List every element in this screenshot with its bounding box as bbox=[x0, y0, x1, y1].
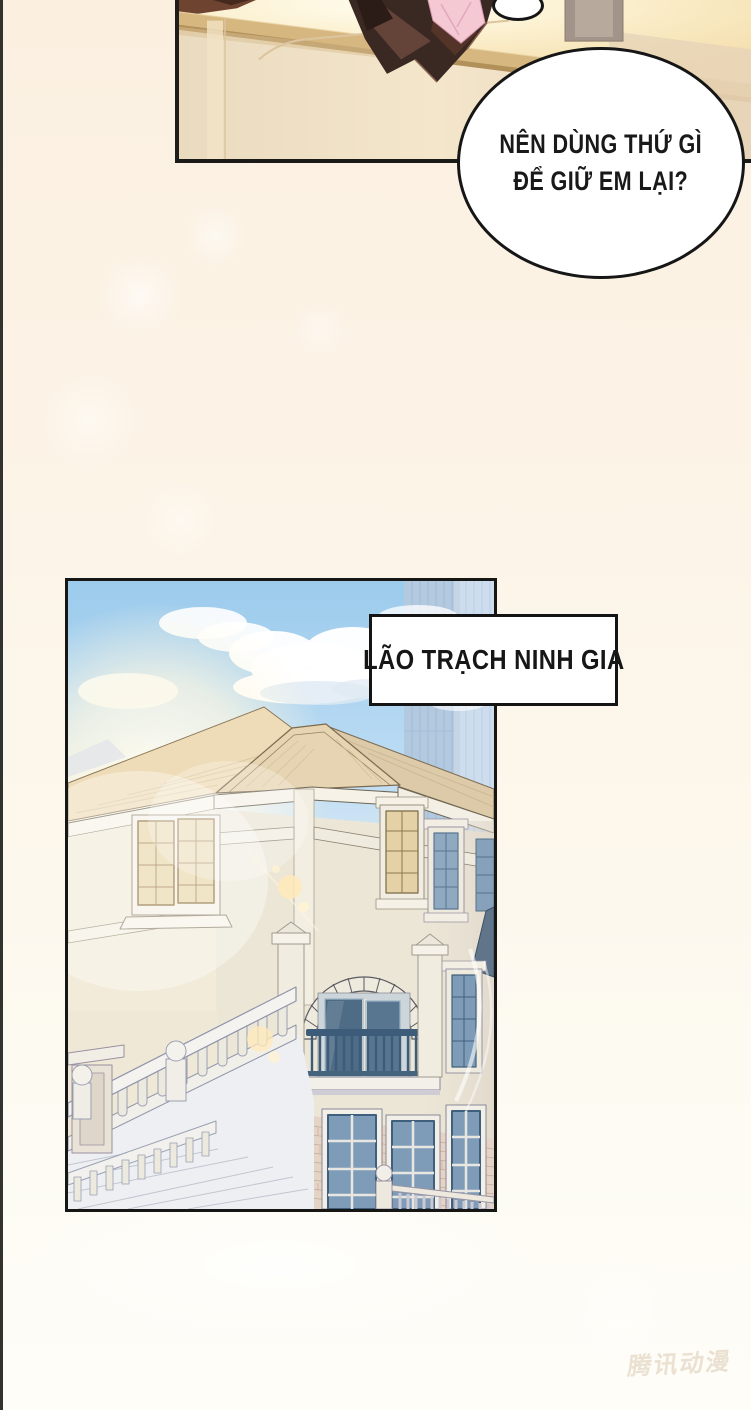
window-upper-right-3 bbox=[476, 839, 494, 911]
door-frame bbox=[565, 0, 623, 41]
window-upper-right-2 bbox=[424, 819, 468, 922]
speech-bubble: NÊN DÙNG THỨ GÌ ĐỂ GIỮ EM LẠI? bbox=[457, 47, 745, 279]
watermark: 腾讯动漫 bbox=[626, 1341, 734, 1382]
window-upper-right-1 bbox=[376, 797, 428, 909]
speech-bubble-text: NÊN DÙNG THỨ GÌ ĐỂ GIỮ EM LẠI? bbox=[500, 126, 703, 200]
page-left-border bbox=[0, 0, 3, 1410]
speech-line-2: ĐỂ GIỮ EM LẠI? bbox=[514, 166, 689, 196]
caption-text: LÃO TRẠCH NINH GIA bbox=[363, 644, 625, 676]
comic-page: NÊN DÙNG THỨ GÌ ĐỂ GIỮ EM LẠI? bbox=[0, 0, 751, 1410]
speech-line-1: NÊN DÙNG THỨ GÌ bbox=[500, 129, 703, 159]
caption-box: LÃO TRẠCH NINH GIA bbox=[369, 614, 618, 706]
